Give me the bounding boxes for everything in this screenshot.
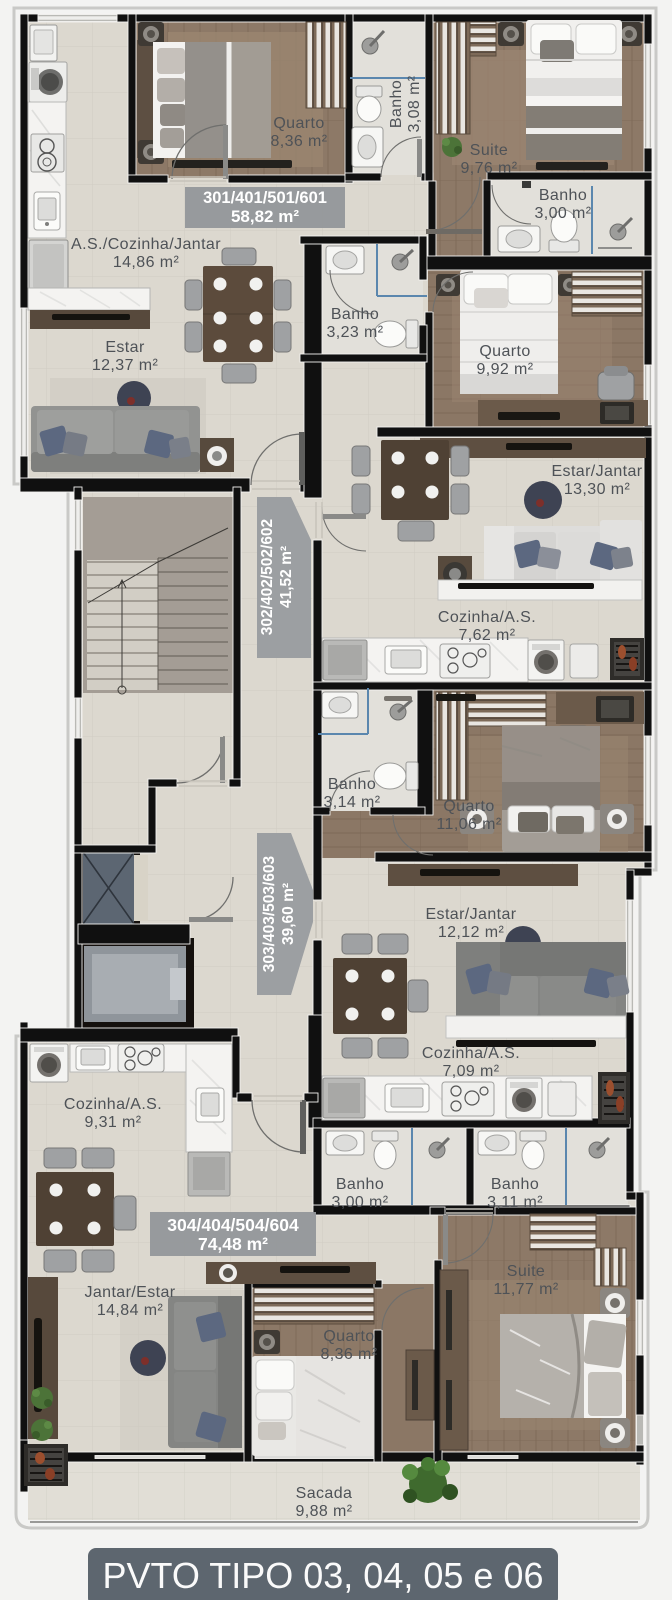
svg-text:301/401/501/601: 301/401/501/601 <box>203 189 327 207</box>
svg-text:8,36 m²: 8,36 m² <box>320 1346 377 1363</box>
svg-text:3,23 m²: 3,23 m² <box>326 324 383 341</box>
svg-text:304/404/504/604: 304/404/504/604 <box>167 1215 299 1235</box>
svg-text:Banho: Banho <box>331 306 379 323</box>
svg-text:7,09 m²: 7,09 m² <box>442 1063 499 1080</box>
svg-text:3,14 m²: 3,14 m² <box>323 794 380 811</box>
svg-text:302/402/502/602: 302/402/502/602 <box>259 519 276 635</box>
svg-text:Estar/Jantar: Estar/Jantar <box>551 463 642 480</box>
svg-text:39,60 m²: 39,60 m² <box>280 883 297 945</box>
svg-text:Quarto: Quarto <box>323 1328 374 1345</box>
svg-text:303/403/503/603: 303/403/503/603 <box>261 855 278 972</box>
svg-text:9,92 m²: 9,92 m² <box>476 361 533 378</box>
svg-text:58,82 m²: 58,82 m² <box>231 207 299 226</box>
svg-text:Estar: Estar <box>105 339 145 356</box>
svg-text:9,31 m²: 9,31 m² <box>84 1114 141 1131</box>
svg-text:Jantar/Estar: Jantar/Estar <box>84 1284 175 1301</box>
svg-text:Cozinha/A.S.: Cozinha/A.S. <box>64 1096 162 1113</box>
svg-text:Sacada: Sacada <box>296 1485 353 1502</box>
svg-text:Suite: Suite <box>470 142 508 159</box>
svg-text:7,62 m²: 7,62 m² <box>458 627 515 644</box>
svg-text:8,36 m²: 8,36 m² <box>270 133 327 150</box>
svg-text:9,88 m²: 9,88 m² <box>295 1503 352 1520</box>
svg-text:41,52 m²: 41,52 m² <box>278 546 295 608</box>
svg-text:Banho: Banho <box>539 187 587 204</box>
svg-text:PVTO TIPO 03, 04, 05 e 06: PVTO TIPO 03, 04, 05 e 06 <box>103 1555 544 1596</box>
svg-text:3,00 m²: 3,00 m² <box>534 205 591 222</box>
svg-text:Cozinha/A.S.: Cozinha/A.S. <box>438 609 536 626</box>
svg-text:11,06 m²: 11,06 m² <box>436 816 501 833</box>
svg-text:Estar/Jantar: Estar/Jantar <box>425 906 516 923</box>
svg-text:13,30 m²: 13,30 m² <box>564 481 631 498</box>
svg-text:Banho: Banho <box>491 1176 539 1193</box>
svg-text:A.S./Cozinha/Jantar: A.S./Cozinha/Jantar <box>71 236 221 253</box>
svg-text:3,11 m²: 3,11 m² <box>487 1194 543 1211</box>
svg-text:Quarto: Quarto <box>479 343 530 360</box>
svg-text:74,48 m²: 74,48 m² <box>198 1234 268 1254</box>
svg-text:11,77 m²: 11,77 m² <box>493 1281 558 1298</box>
svg-text:Banho: Banho <box>328 776 376 793</box>
svg-text:14,86 m²: 14,86 m² <box>113 254 180 271</box>
svg-text:9,76 m²: 9,76 m² <box>460 160 517 177</box>
svg-text:12,12 m²: 12,12 m² <box>438 924 505 941</box>
svg-text:3,00 m²: 3,00 m² <box>331 1194 388 1211</box>
svg-text:Banho: Banho <box>388 80 405 128</box>
svg-text:3,08 m²: 3,08 m² <box>406 75 423 132</box>
svg-text:Quarto: Quarto <box>443 798 494 815</box>
svg-text:Cozinha/A.S.: Cozinha/A.S. <box>422 1045 520 1062</box>
svg-text:12,37 m²: 12,37 m² <box>92 357 159 374</box>
svg-text:Suite: Suite <box>507 1263 545 1280</box>
svg-text:Quarto: Quarto <box>273 115 324 132</box>
svg-text:Banho: Banho <box>336 1176 384 1193</box>
svg-text:14,84 m²: 14,84 m² <box>97 1302 164 1319</box>
